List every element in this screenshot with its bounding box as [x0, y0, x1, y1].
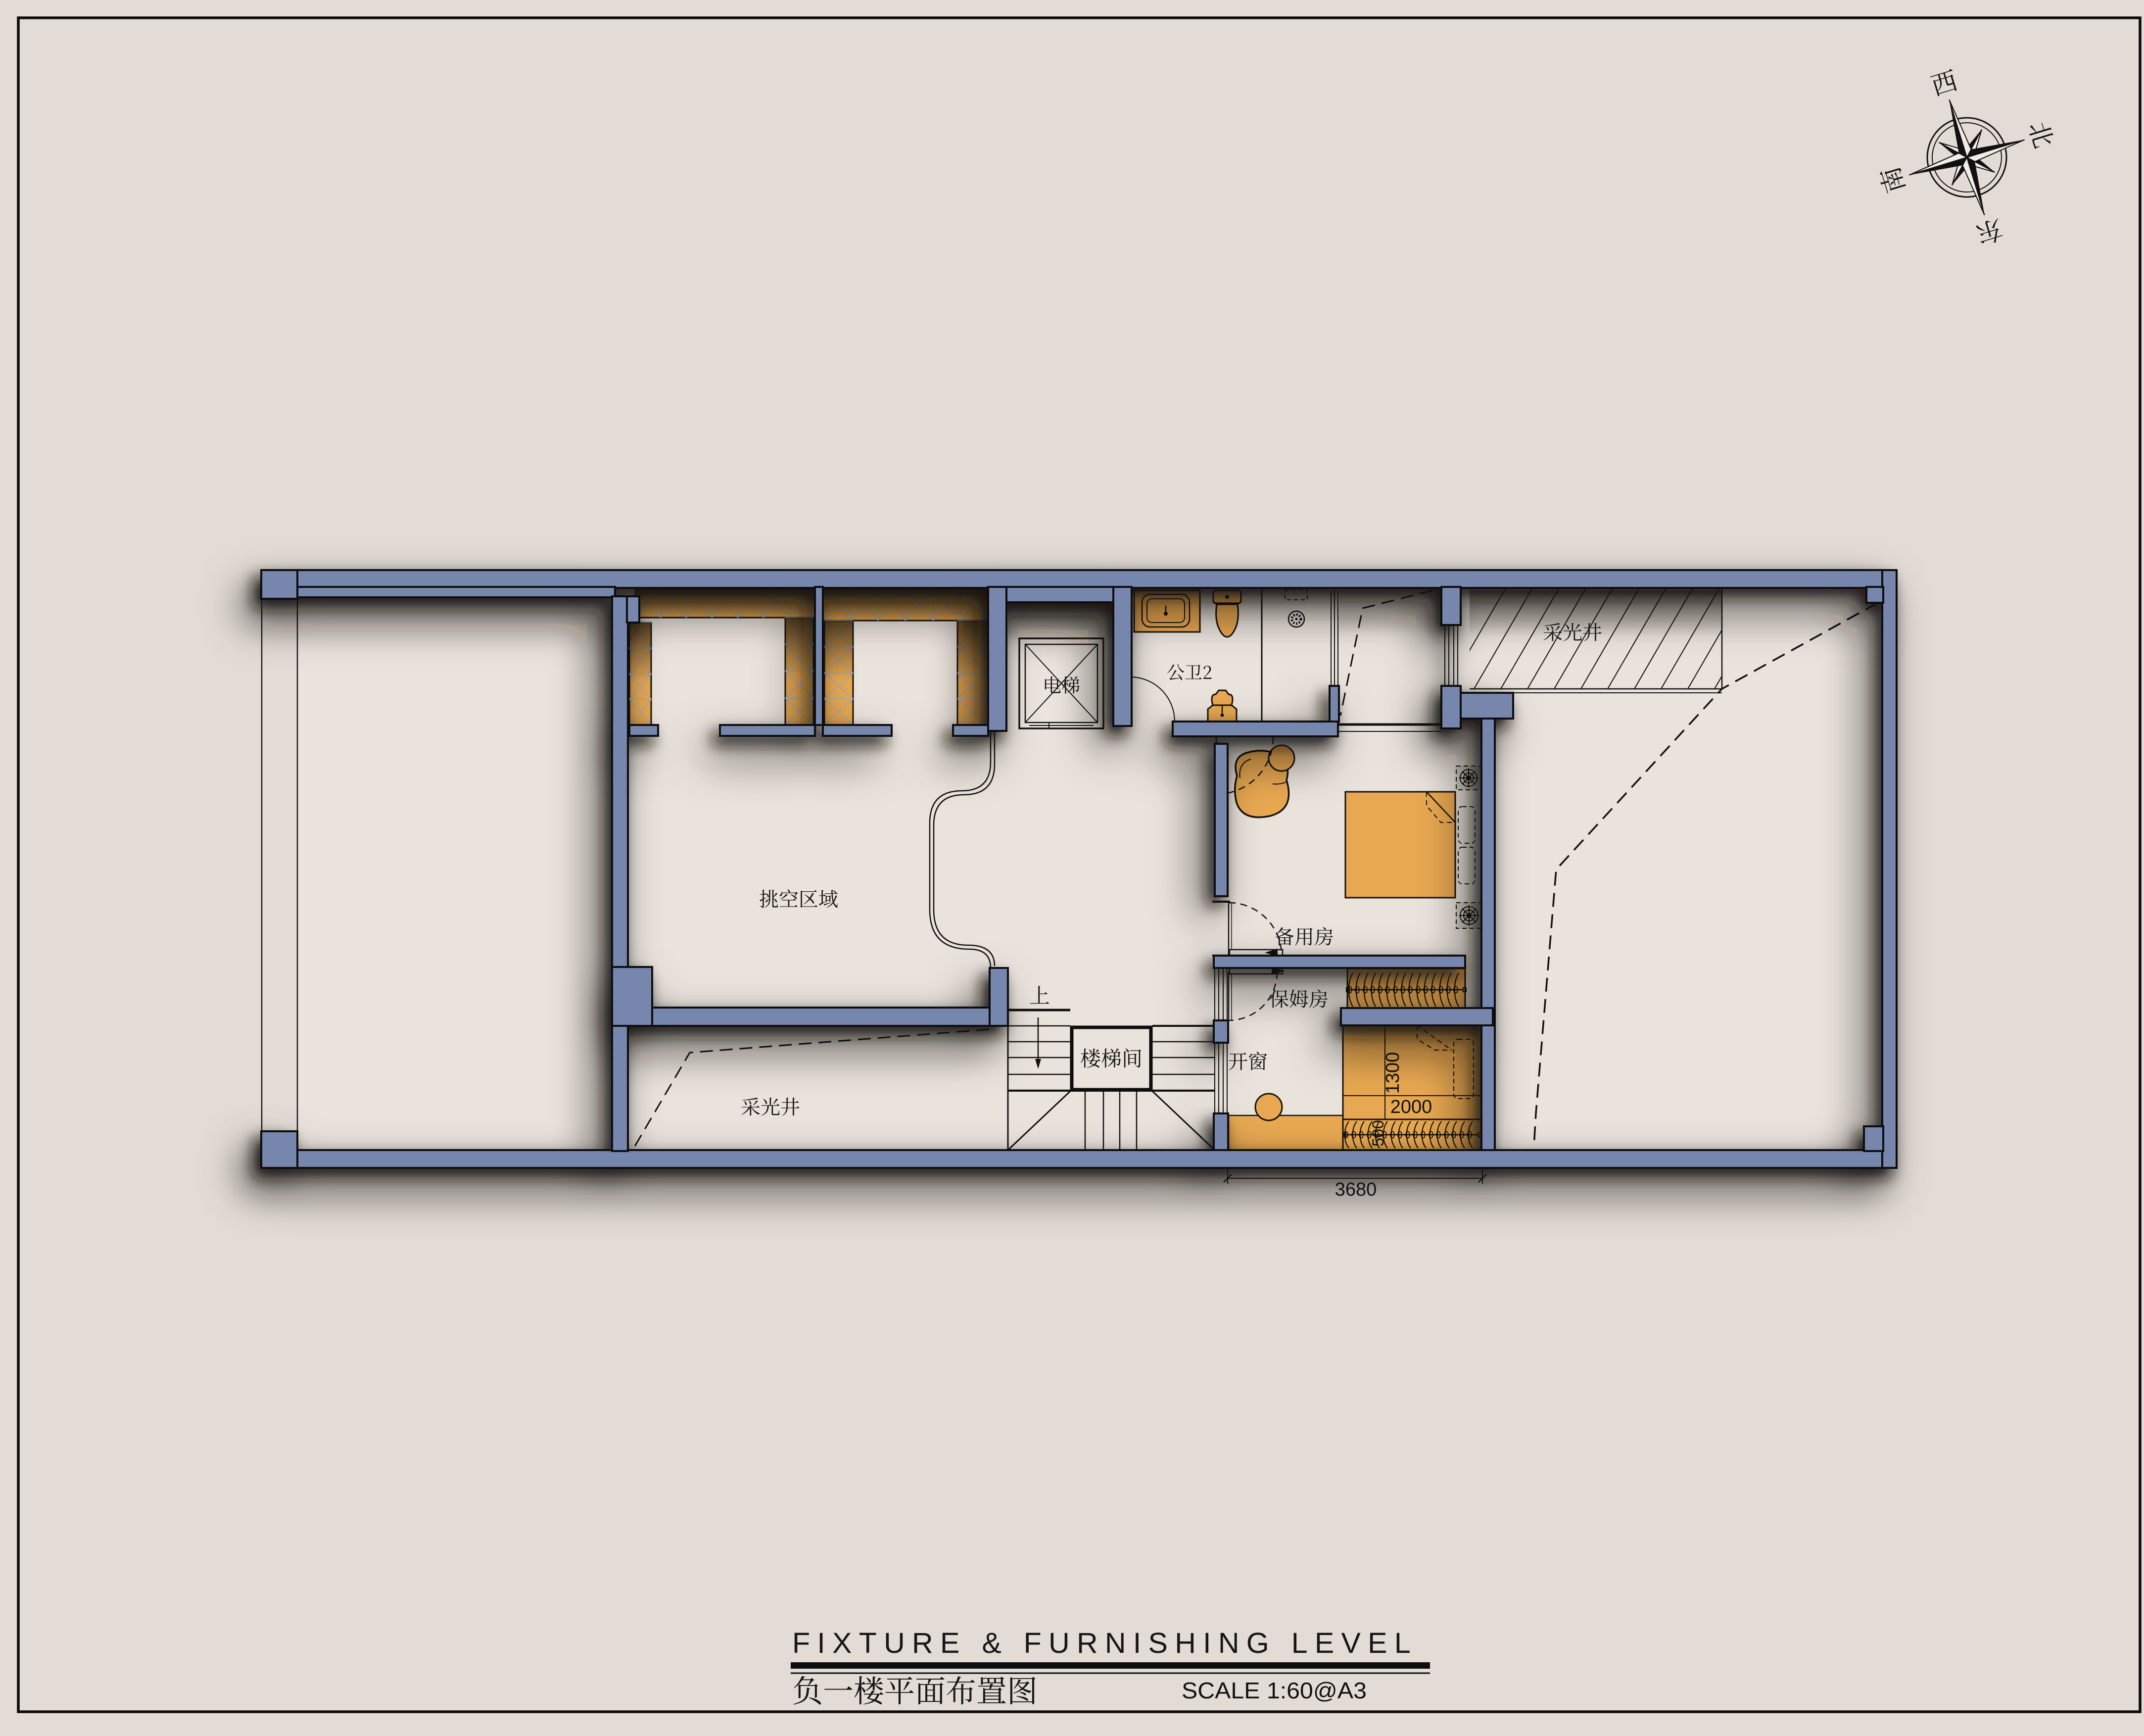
- svg-text:1300: 1300: [1382, 1052, 1403, 1094]
- svg-text:2000: 2000: [1390, 1097, 1432, 1117]
- svg-text:3680: 3680: [1335, 1179, 1377, 1200]
- svg-text:SCALE 1:60@A3: SCALE 1:60@A3: [1182, 1678, 1367, 1703]
- svg-text:FIXTURE & FURNISHING LEVEL: FIXTURE & FURNISHING LEVEL: [792, 1627, 1418, 1659]
- svg-text:500: 500: [1369, 1120, 1387, 1146]
